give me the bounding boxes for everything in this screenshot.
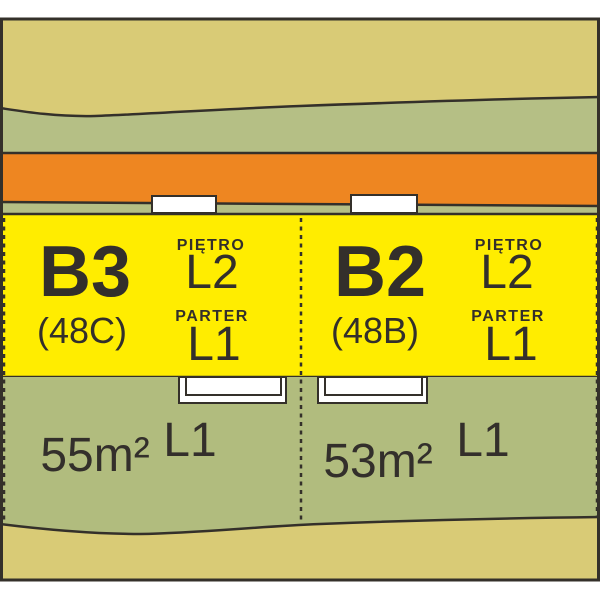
entrance-marker-b2 bbox=[350, 194, 418, 214]
garden-area-size: 55m² bbox=[40, 432, 149, 480]
road-band bbox=[0, 153, 600, 206]
floor-value-l2: L2 bbox=[480, 249, 533, 297]
entrance-marker-b3 bbox=[151, 195, 217, 214]
unit-id: B2 bbox=[334, 236, 426, 308]
garden-area-size: 53m² bbox=[323, 438, 432, 486]
unit-id: B3 bbox=[39, 236, 131, 308]
garden-b2-area[interactable]: 53m² L1 bbox=[301, 378, 598, 524]
unit-b2-area[interactable]: B2 (48B) PIĘTRO L2 PARTER L1 bbox=[301, 215, 598, 377]
garden-level: L1 bbox=[456, 417, 509, 465]
unit-code: (48C) bbox=[37, 313, 127, 349]
unit-code: (48B) bbox=[331, 313, 419, 349]
floor-value-l1: L1 bbox=[484, 321, 537, 369]
floor-value-l2: L2 bbox=[185, 249, 238, 297]
unit-b3-area[interactable]: B3 (48C) PIĘTRO L2 PARTER L1 bbox=[2, 215, 301, 377]
garden-level: L1 bbox=[163, 417, 216, 465]
garden-b3-area[interactable]: 55m² L1 bbox=[2, 378, 301, 524]
site-plan: B3 (48C) PIĘTRO L2 PARTER L1 B2 (48B) PI… bbox=[0, 0, 600, 600]
floor-value-l1: L1 bbox=[187, 321, 240, 369]
